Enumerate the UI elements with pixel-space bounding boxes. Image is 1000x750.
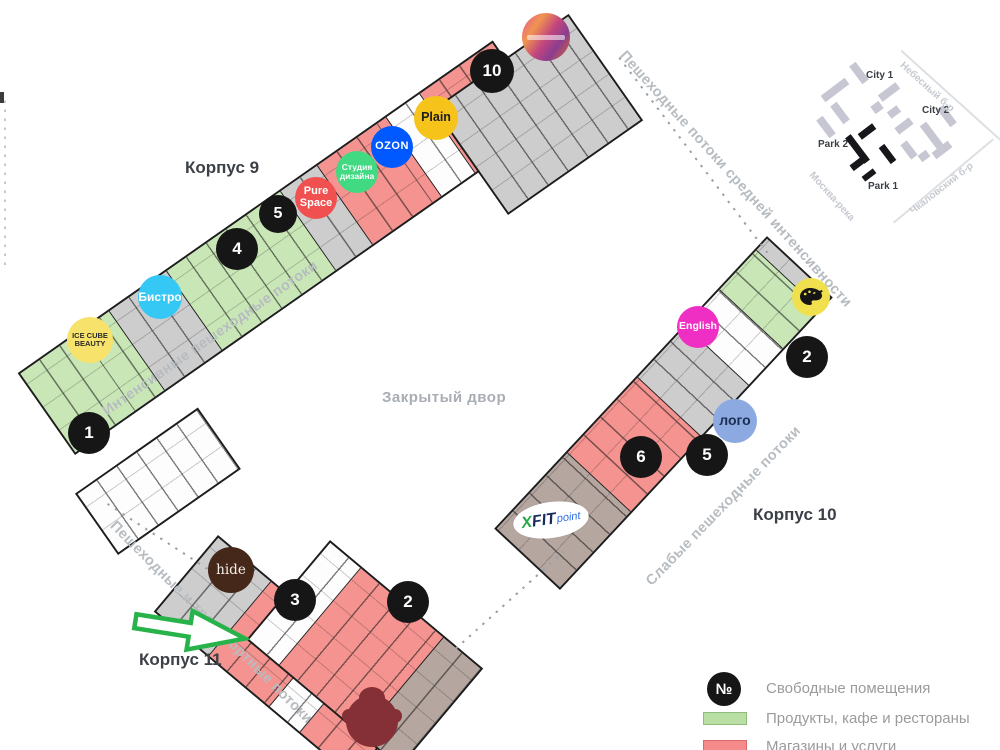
dotted-flow-line-left-edge bbox=[4, 95, 6, 265]
minimap-building bbox=[821, 78, 850, 102]
legend-number-marker: № bbox=[707, 672, 741, 706]
xfit-point: point bbox=[556, 510, 581, 525]
dotted-flow-line-weak bbox=[455, 551, 564, 650]
tenant-badge-art-studio bbox=[522, 13, 570, 61]
minimap-building bbox=[830, 102, 850, 124]
vacancy-marker-k10-5: 5 bbox=[686, 434, 728, 476]
tenant-badge-design-studio: Студия дизайна bbox=[336, 151, 378, 193]
palette-icon bbox=[799, 287, 823, 307]
tenant-badge-hide: hide bbox=[208, 547, 254, 593]
tenant-badge-ozon: OZON bbox=[371, 126, 413, 168]
plan-edge-mark bbox=[0, 92, 4, 103]
korpus9-label: Корпус 9 bbox=[185, 158, 259, 178]
minimap-label-park1: Park 1 bbox=[868, 181, 898, 192]
legend-label-shops: Магазины и услуги bbox=[766, 738, 896, 750]
tenant-badge-art-palette bbox=[792, 278, 830, 316]
art-studio-text-stripe bbox=[527, 35, 565, 40]
minimap-building bbox=[887, 105, 901, 119]
minimap-building bbox=[870, 101, 883, 114]
minimap-street-moskva: Москва-река bbox=[807, 170, 857, 223]
vacancy-marker-5: 5 bbox=[259, 195, 297, 233]
minimap-building bbox=[918, 150, 931, 162]
minimap-building bbox=[816, 116, 836, 138]
minimap-label-park2: Park 2 bbox=[818, 139, 848, 150]
vacancy-marker-4: 4 bbox=[216, 228, 258, 270]
vacancy-marker-10: 10 bbox=[470, 49, 514, 93]
vacancy-marker-k10-6: 6 bbox=[620, 436, 662, 478]
tenant-badge-mascot bbox=[346, 695, 398, 747]
xfit-fit: FIT bbox=[531, 510, 557, 531]
tenant-badge-logo-placeholder: лого bbox=[713, 399, 757, 443]
mascot-head bbox=[359, 687, 385, 709]
legend-label-products: Продукты, кафе и рестораны bbox=[766, 710, 970, 727]
minimap-highlighted-building bbox=[858, 123, 877, 139]
legend-label-free: Свободные помещения bbox=[766, 680, 930, 697]
tenant-badge-bistro: Бистро bbox=[138, 275, 182, 319]
minimap-building bbox=[900, 140, 917, 159]
tenant-badge-plain: Plain bbox=[414, 96, 458, 140]
vacancy-marker-1: 1 bbox=[68, 412, 110, 454]
tenant-badge-english: English bbox=[677, 306, 719, 348]
courtyard-label: Закрытый двор bbox=[382, 389, 506, 406]
minimap-street-line-1 bbox=[901, 50, 1000, 141]
minimap-highlighted-building bbox=[862, 168, 877, 181]
minimap-building bbox=[894, 117, 913, 134]
mascot-ear-right bbox=[388, 709, 402, 723]
legend-swatch-shops bbox=[703, 740, 747, 750]
tenant-badge-ice-cube-beauty: ICE CUBE BEAUTY bbox=[67, 317, 113, 363]
minimap-street-chkalovsky: Чкаловский б-р bbox=[908, 161, 976, 217]
vacancy-marker-k11-3: 3 bbox=[274, 579, 316, 621]
legend-swatch-products bbox=[703, 712, 747, 725]
minimap-label-city1: City 1 bbox=[866, 70, 893, 81]
vacancy-marker-k11-2: 2 bbox=[387, 581, 429, 623]
mascot-ear-left bbox=[342, 709, 356, 723]
tenant-badge-pure-space: Pure Space bbox=[295, 177, 337, 219]
vacancy-marker-k10-2: 2 bbox=[786, 336, 828, 378]
minimap-highlighted-building bbox=[879, 144, 897, 164]
minimap-building bbox=[878, 82, 900, 102]
site-plan-figure: Интенсивные пешеходные потоки Пешеходные… bbox=[0, 0, 1000, 750]
korpus10-label: Корпус 10 bbox=[753, 505, 837, 525]
